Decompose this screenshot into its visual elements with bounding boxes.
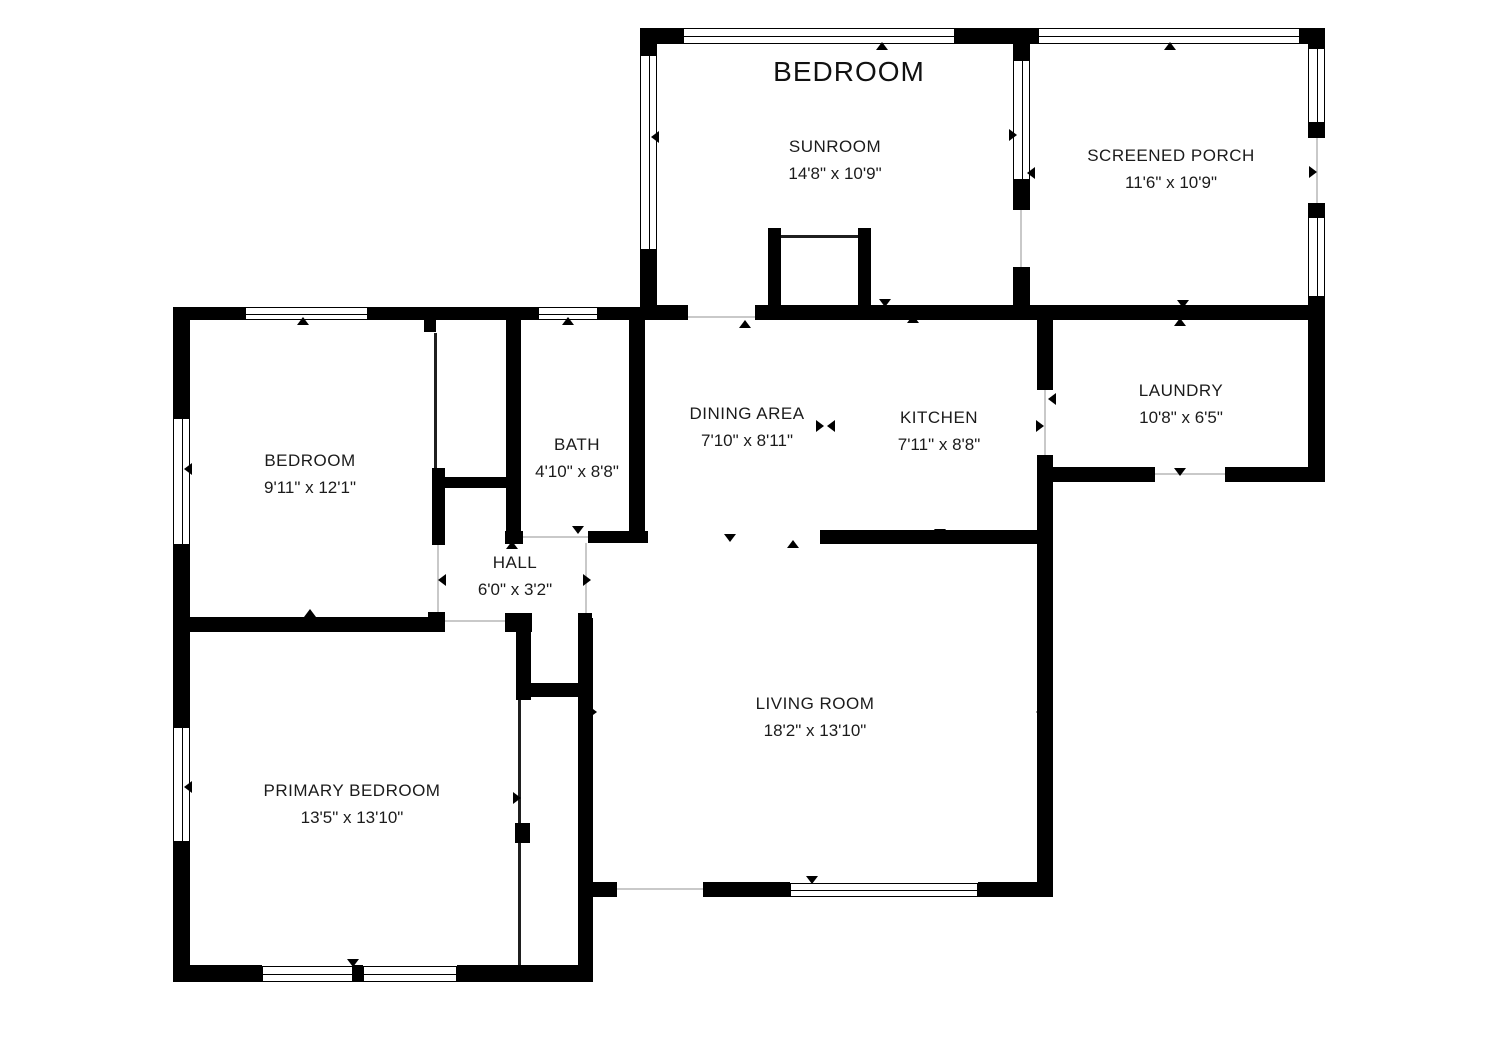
- wall: [1308, 28, 1325, 48]
- window-pane-line: [684, 36, 954, 37]
- room-name: LIVING ROOM: [756, 690, 875, 717]
- door-swing-arrow: [562, 317, 574, 325]
- window: [790, 883, 978, 897]
- door-swing-arrow: [589, 706, 597, 718]
- room-label-bedroom: BEDROOM9'11" x 12'1": [264, 447, 356, 501]
- wall: [173, 842, 190, 980]
- door-swing-arrow: [934, 529, 946, 537]
- room-dims: 10'8" x 6'5": [1139, 404, 1223, 431]
- window-pane-line: [1022, 61, 1023, 179]
- wall: [1037, 308, 1053, 390]
- wall: [424, 318, 436, 332]
- thin-wall: [781, 235, 858, 238]
- door-threshold: [445, 620, 505, 622]
- wall: [858, 228, 871, 305]
- room-name: KITCHEN: [898, 404, 981, 431]
- wall: [433, 477, 512, 488]
- window-pane-line: [649, 56, 650, 249]
- door-swing-arrow: [1309, 166, 1317, 178]
- room-name: SCREENED PORCH: [1087, 142, 1255, 169]
- door-swing-arrow: [583, 574, 591, 586]
- room-label-kitchen: KITCHEN7'11" x 8'8": [898, 404, 981, 458]
- window: [1308, 48, 1325, 123]
- wall: [593, 882, 617, 897]
- room-dims: 7'11" x 8'8": [898, 431, 981, 458]
- thin-wall: [518, 700, 521, 823]
- door-swing-arrow: [1311, 392, 1319, 404]
- room-label-primary-bedroom: PRIMARY BEDROOM13'5" x 13'10": [264, 777, 441, 831]
- door-swing-arrow: [1174, 318, 1186, 326]
- door-swing-arrow: [1036, 706, 1044, 718]
- door-threshold: [1155, 473, 1225, 475]
- door-swing-arrow: [1177, 300, 1189, 308]
- door-swing-arrow: [1009, 129, 1017, 141]
- room-name: HALL: [478, 549, 552, 576]
- window: [173, 418, 190, 545]
- room-name: PRIMARY BEDROOM: [264, 777, 441, 804]
- room-name: LAUNDRY: [1139, 377, 1223, 404]
- wall: [428, 612, 445, 632]
- window: [262, 966, 353, 982]
- window-pane-line: [246, 314, 367, 315]
- room-name: BEDROOM: [264, 447, 356, 474]
- window: [363, 966, 457, 982]
- door-threshold: [1020, 210, 1022, 267]
- thin-wall: [434, 333, 437, 468]
- room-dims: 4'10" x 8'8": [535, 458, 619, 485]
- door-swing-arrow: [1174, 468, 1186, 476]
- door-swing-arrow: [347, 959, 359, 967]
- door-swing-arrow: [572, 526, 584, 534]
- wall: [1037, 455, 1053, 897]
- window-pane-line: [1039, 36, 1299, 37]
- door-swing-arrow: [1164, 42, 1176, 50]
- room-label-sunroom: SUNROOM14'8" x 10'9": [788, 133, 881, 187]
- door-swing-arrow: [816, 420, 824, 432]
- door-swing-arrow: [907, 315, 919, 323]
- room-name: BATH: [535, 431, 619, 458]
- door-swing-arrow: [879, 299, 891, 307]
- window: [640, 55, 657, 250]
- wall: [457, 965, 593, 982]
- room-label-dining-area: DINING AREA7'10" x 8'11": [689, 400, 804, 454]
- door-swing-arrow: [724, 534, 736, 542]
- wall: [820, 530, 1039, 544]
- wall: [1308, 203, 1325, 217]
- window: [1308, 217, 1325, 297]
- door-swing-arrow: [184, 781, 192, 793]
- wall: [173, 545, 190, 727]
- door-swing-arrow: [787, 540, 799, 548]
- wall: [755, 305, 1013, 320]
- door-threshold: [523, 536, 588, 538]
- wall: [516, 618, 531, 700]
- room-dims: 9'11" x 12'1": [264, 474, 356, 501]
- door-swing-arrow: [438, 574, 446, 586]
- door-swing-arrow: [184, 463, 192, 475]
- door-swing-arrow: [1048, 393, 1056, 405]
- room-dims: 6'0" x 3'2": [478, 576, 552, 603]
- wall: [173, 617, 445, 632]
- door-swing-arrow: [513, 792, 521, 804]
- wall: [1308, 123, 1325, 138]
- door-swing-arrow: [304, 609, 316, 617]
- wall: [353, 965, 363, 982]
- window: [683, 28, 955, 44]
- window-pane-line: [539, 314, 597, 315]
- wall: [1013, 28, 1030, 60]
- wall: [173, 965, 262, 982]
- door-swing-arrow: [806, 876, 818, 884]
- room-name: SUNROOM: [788, 133, 881, 160]
- door-swing-arrow: [1036, 420, 1044, 432]
- wall: [173, 307, 190, 418]
- window-pane-line: [1317, 218, 1318, 296]
- window: [1013, 60, 1030, 180]
- floorplan: BEDROOM SUNROOM14'8" x 10'9"SCREENED POR…: [0, 0, 1500, 1064]
- room-dims: 11'6" x 10'9": [1087, 169, 1255, 196]
- wall: [1013, 180, 1030, 210]
- door-swing-arrow: [506, 541, 518, 549]
- window-pane-line: [791, 890, 977, 891]
- room-dims: 18'2" x 13'10": [756, 717, 875, 744]
- door-swing-arrow: [507, 613, 519, 621]
- door-swing-arrow: [876, 42, 888, 50]
- door-swing-arrow: [739, 320, 751, 328]
- door-threshold: [617, 888, 703, 890]
- door-swing-arrow: [297, 317, 309, 325]
- room-label-living-room: LIVING ROOM18'2" x 13'10": [756, 690, 875, 744]
- wall: [506, 318, 521, 543]
- room-label-bath: BATH4'10" x 8'8": [535, 431, 619, 485]
- wall: [588, 531, 648, 543]
- room-label-hall: HALL6'0" x 3'2": [478, 549, 552, 603]
- wall: [530, 683, 580, 697]
- door-threshold: [1044, 390, 1046, 455]
- wall: [768, 228, 781, 305]
- room-dims: 7'10" x 8'11": [689, 427, 804, 454]
- wall: [629, 318, 645, 543]
- room-label-screened-porch: SCREENED PORCH11'6" x 10'9": [1087, 142, 1255, 196]
- room-dims: 13'5" x 13'10": [264, 804, 441, 831]
- wall: [578, 618, 593, 980]
- thin-wall: [518, 843, 521, 965]
- door-threshold: [688, 316, 755, 318]
- room-name: DINING AREA: [689, 400, 804, 427]
- window-pane-line: [182, 419, 183, 544]
- room-dims: 14'8" x 10'9": [788, 160, 881, 187]
- door-swing-arrow: [827, 420, 835, 432]
- wall: [703, 882, 790, 897]
- wall: [515, 823, 530, 843]
- room-label-laundry: LAUNDRY10'8" x 6'5": [1139, 377, 1223, 431]
- door-swing-arrow: [1027, 167, 1035, 179]
- window-pane-line: [364, 974, 456, 975]
- wall: [657, 305, 688, 320]
- window-pane-line: [182, 728, 183, 841]
- wall: [1050, 467, 1155, 482]
- door-swing-arrow: [346, 622, 358, 630]
- window-pane-line: [1317, 49, 1318, 122]
- window-pane-line: [263, 974, 352, 975]
- room-label-bedroom-header: BEDROOM: [773, 56, 925, 88]
- door-swing-arrow: [651, 131, 659, 143]
